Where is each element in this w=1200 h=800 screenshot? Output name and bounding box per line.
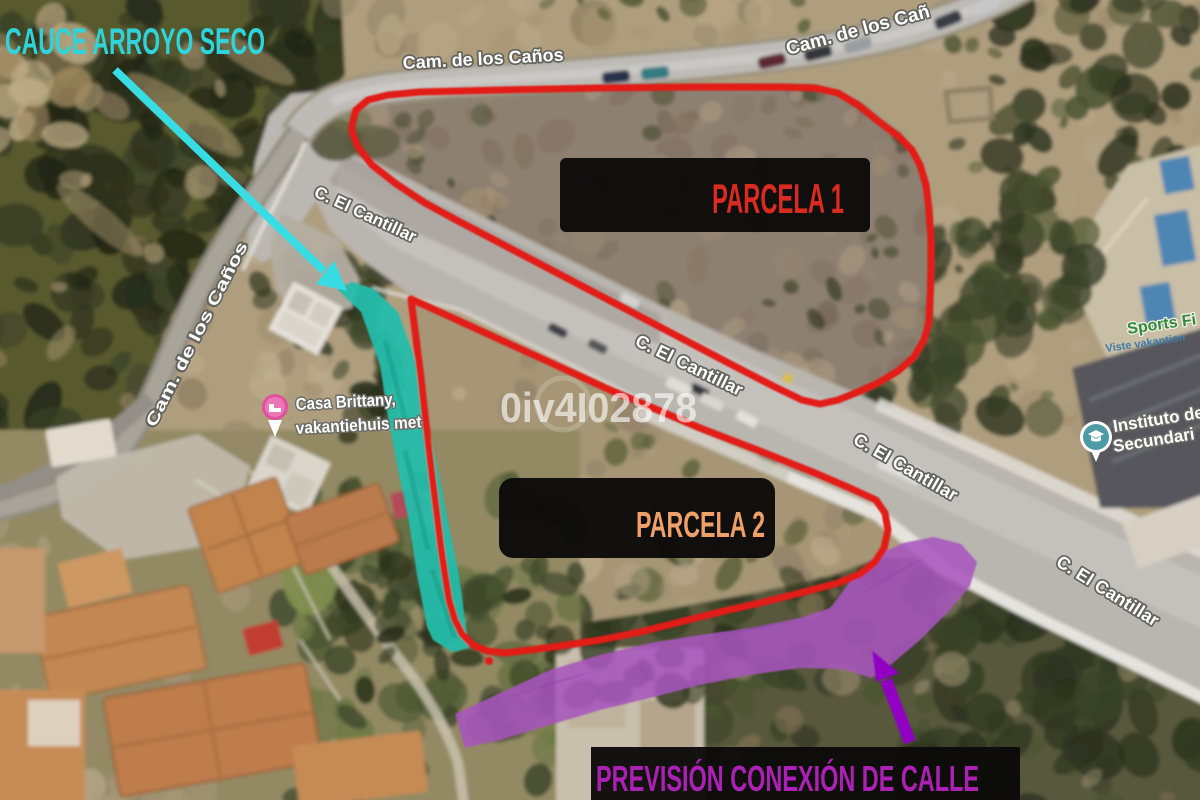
svg-text:PARCELA 2: PARCELA 2 [636, 504, 765, 545]
svg-text:CAUCE ARROYO SECO: CAUCE ARROYO SECO [5, 21, 265, 62]
svg-text:PREVISIÓN CONEXIÓN DE CALLE: PREVISIÓN CONEXIÓN DE CALLE [596, 757, 979, 799]
svg-text:0iv4I02878: 0iv4I02878 [500, 384, 697, 431]
svg-text:PARCELA 1: PARCELA 1 [712, 175, 844, 222]
